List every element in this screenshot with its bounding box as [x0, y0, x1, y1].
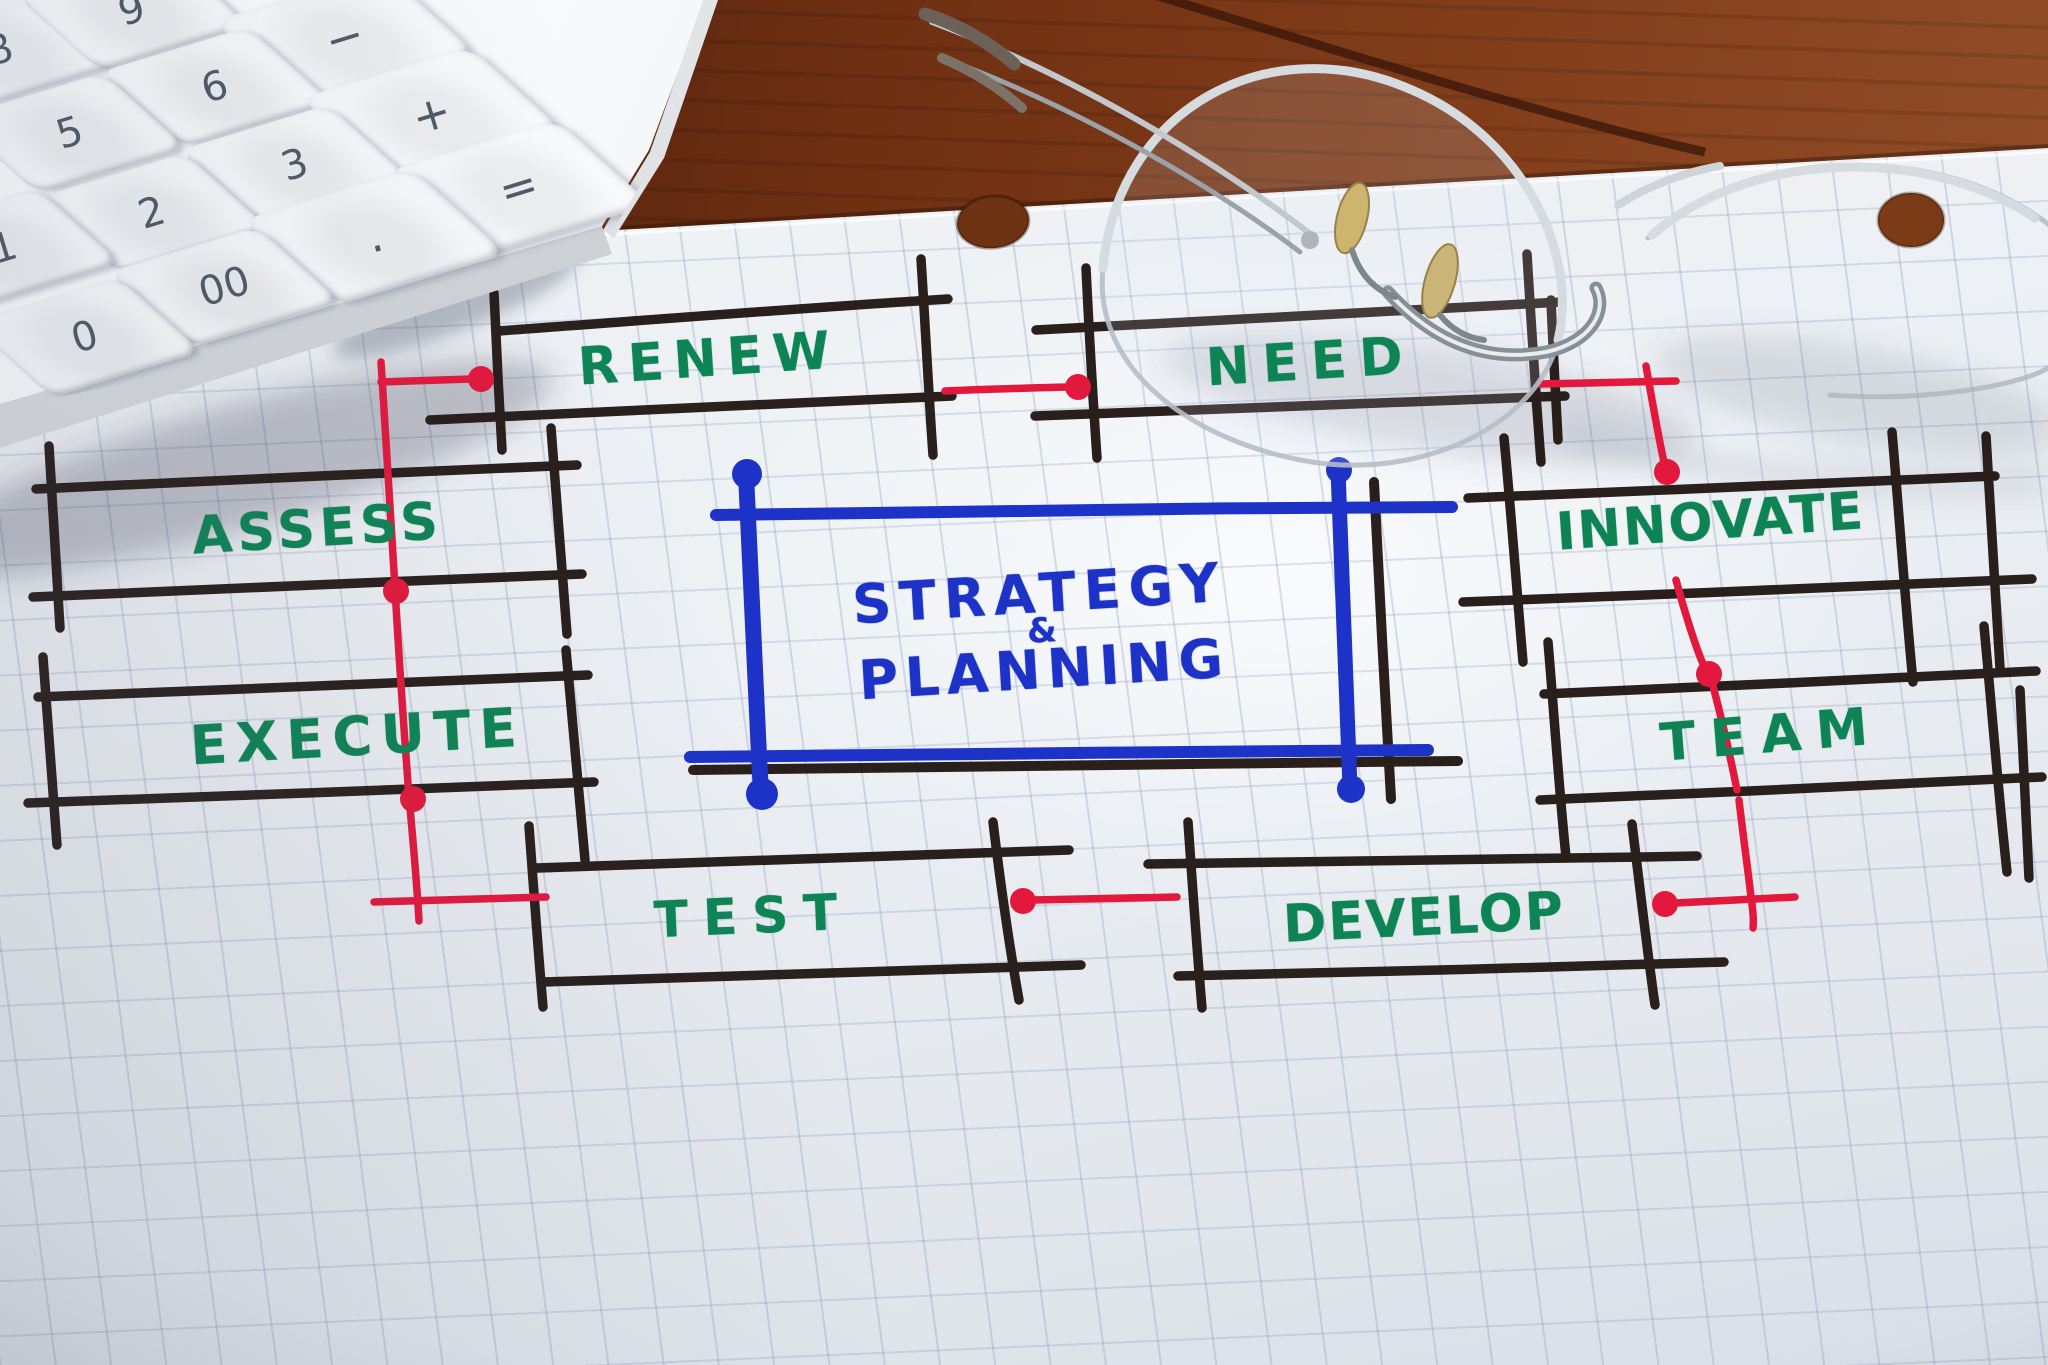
red-line-renew-need [945, 387, 1068, 391]
desk-photo-scene: RENEW NEED ASSESS INNOVATE EXECUTE TEAM … [0, 0, 2048, 1365]
red-line-develop-right [1675, 897, 1795, 903]
cast-shadows [0, 234, 2048, 618]
red-line-left-top [381, 379, 471, 382]
red-line-test-develop [1033, 897, 1177, 900]
red-line-right-vertical-4 [1739, 800, 1753, 928]
drawing-layer [0, 0, 2048, 1365]
team-box [1540, 626, 2042, 878]
execute-box [28, 650, 594, 860]
red-line-right-vertical-3 [1713, 686, 1737, 790]
right-lens-frame [1652, 167, 2035, 235]
hole-punch-left [954, 192, 1031, 251]
red-line-right-top [1540, 381, 1676, 384]
test-box [529, 822, 1081, 1007]
hole-punch-right [1878, 193, 1944, 247]
strategy-planning-box [690, 470, 1452, 794]
red-line-left-bottom-cross [374, 897, 546, 902]
hinge-screw [1301, 231, 1319, 249]
develop-box [1148, 822, 1724, 1008]
